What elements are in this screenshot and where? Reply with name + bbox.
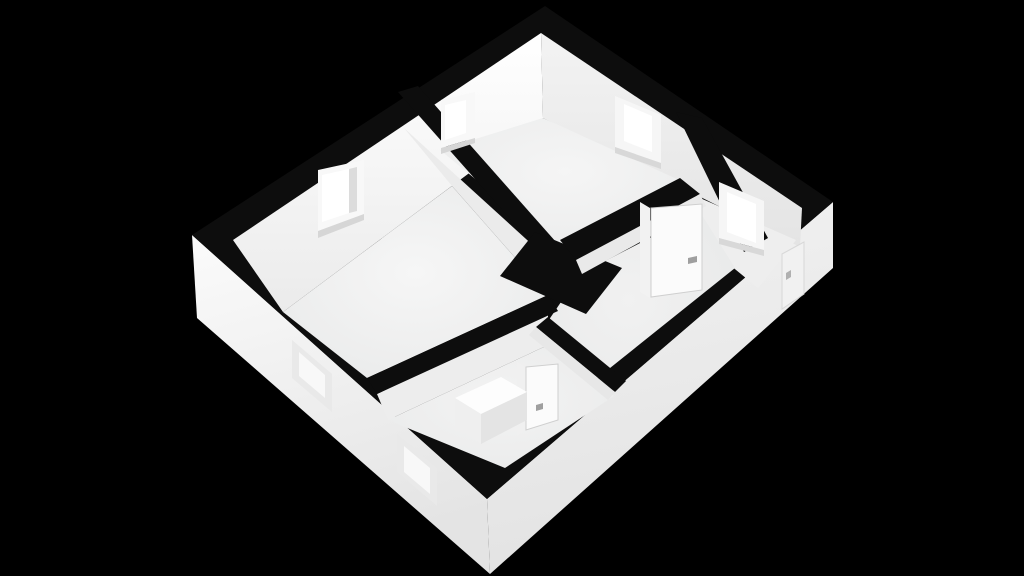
window-bedroom-north-pane (445, 100, 466, 140)
floorplan-3d-scene (0, 0, 1024, 576)
entrance-door-outline (782, 242, 804, 309)
bathroom-door-panel (526, 364, 558, 430)
window-living-room-jamb-shadow (349, 167, 357, 213)
floorplan-3d-render (0, 0, 1024, 576)
window-living-room-pane (322, 169, 349, 222)
hall-door-panel (651, 204, 702, 297)
hall-door-jamb (640, 202, 650, 298)
